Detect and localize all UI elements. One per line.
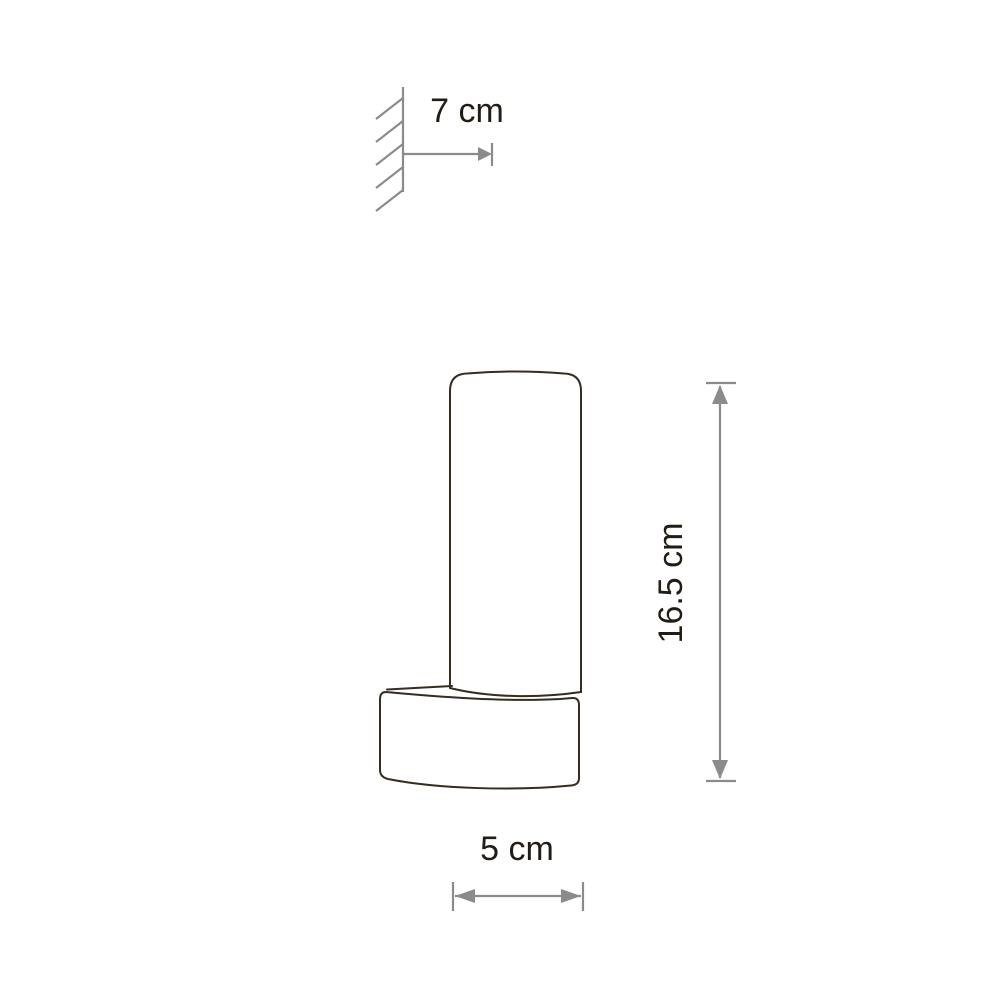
depth-dimension: 7 cm xyxy=(403,92,504,166)
height-dimension: 16.5 cm xyxy=(652,383,736,781)
lamp-bracket-top-edge xyxy=(387,686,452,690)
height-top-arrowhead-icon xyxy=(712,385,728,404)
lamp-bracket xyxy=(380,692,579,789)
lamp-cylinder-bottom-edge xyxy=(450,688,581,696)
lamp-cylinder xyxy=(450,372,581,693)
height-bottom-arrowhead-icon xyxy=(712,760,728,779)
height-label: 16.5 cm xyxy=(652,523,690,644)
width-right-arrowhead-icon xyxy=(561,889,581,903)
wall-mount-symbol xyxy=(376,87,403,211)
wall-hatch-icon xyxy=(376,98,403,211)
width-dimension: 5 cm xyxy=(453,830,583,911)
lamp-drawing xyxy=(380,372,581,789)
depth-arrowhead-icon xyxy=(478,147,492,161)
depth-label: 7 cm xyxy=(430,92,504,130)
width-left-arrowhead-icon xyxy=(455,889,475,903)
width-label: 5 cm xyxy=(480,830,554,868)
dimension-diagram: 7 cm 16.5 cm 5 cm xyxy=(0,0,1000,1000)
diagram-canvas: 7 cm 16.5 cm 5 cm xyxy=(0,0,1000,1000)
